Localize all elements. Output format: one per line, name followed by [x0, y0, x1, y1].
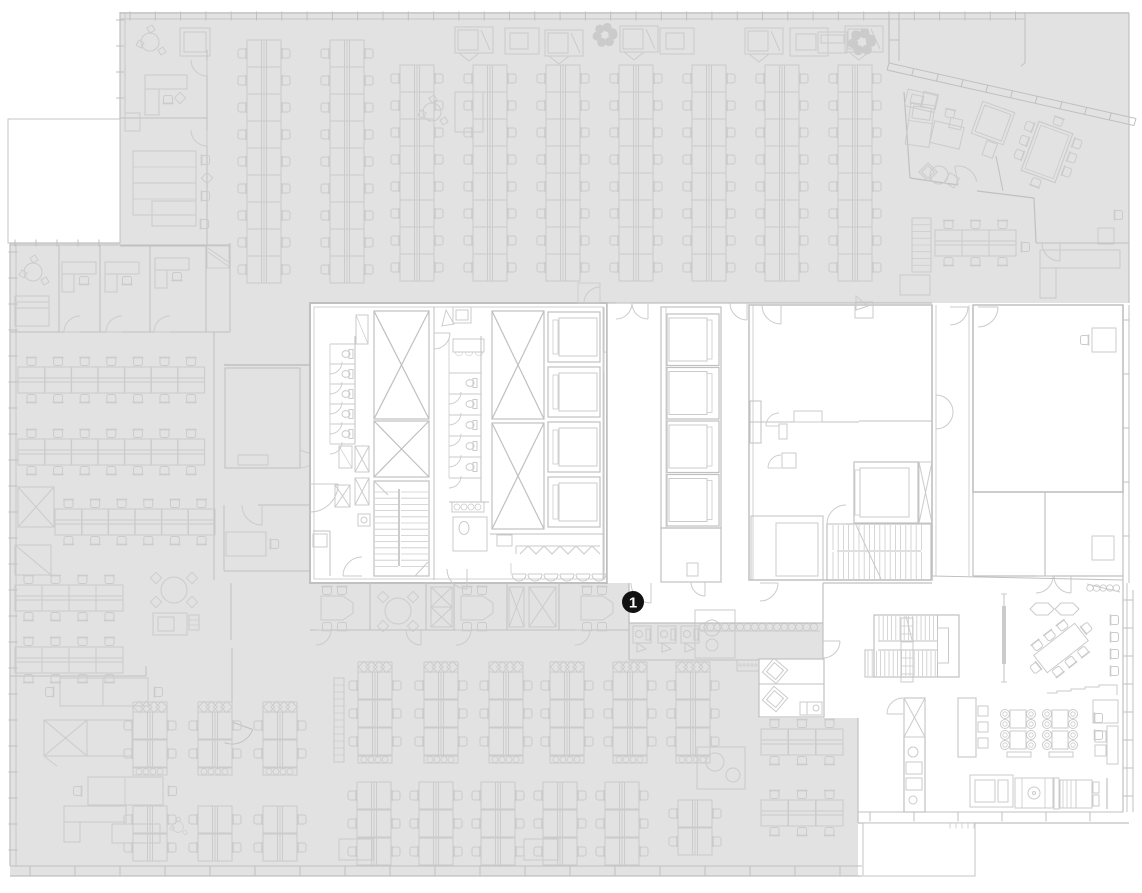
svg-text:1: 1	[629, 595, 637, 612]
